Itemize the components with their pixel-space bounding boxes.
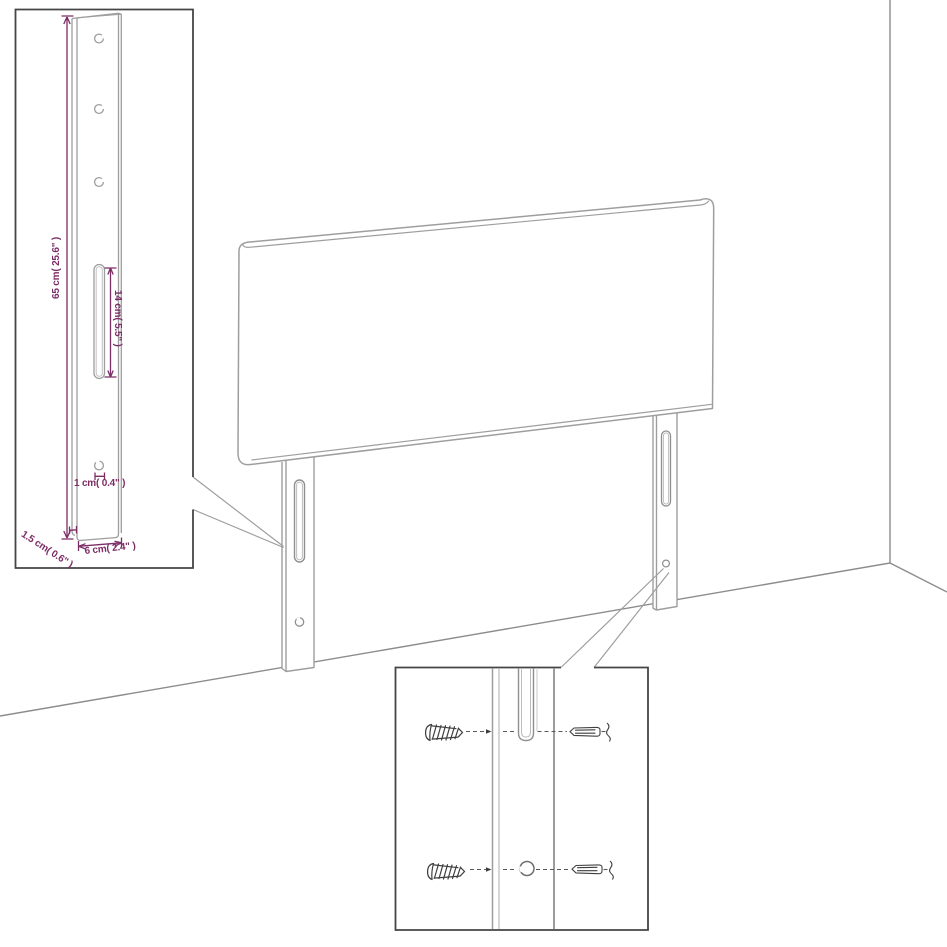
dimension-label-hole: 1 cm( 0.4" ) <box>74 478 125 489</box>
headboard-leg-right <box>653 406 677 610</box>
callout-lines-detail <box>193 477 284 548</box>
diagram-canvas <box>0 0 947 947</box>
headboard-leg-left <box>282 455 314 672</box>
leg-hole <box>663 560 670 567</box>
assembly-diagram: 65 cm( 25.6" ) 14 cm( 5.5" ) 1 cm( 0.4" … <box>0 0 947 947</box>
hardware-inset <box>396 668 649 931</box>
headboard-panel <box>238 199 714 465</box>
dimension-label-height: 65 cm( 25.6" ) <box>51 237 62 299</box>
dimension-label-slot: 14 cm( 5.5" ) <box>112 290 123 347</box>
